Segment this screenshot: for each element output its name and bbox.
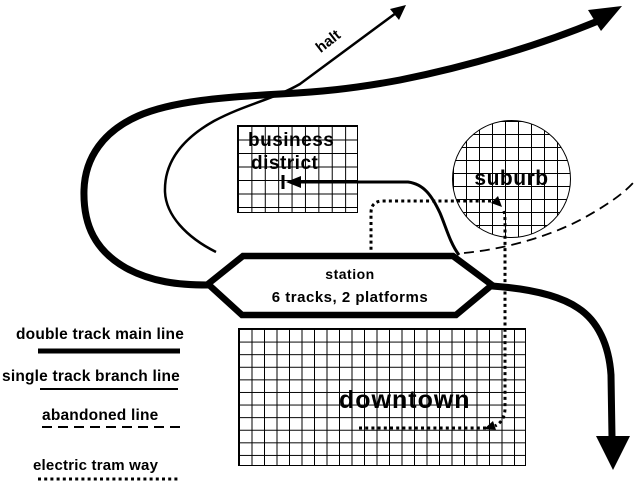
abandoned-line <box>464 183 633 253</box>
tram-arrowhead-suburb-icon <box>491 196 502 207</box>
downtown-label: downtown <box>339 386 471 415</box>
main-line-south-arrowhead-icon <box>596 436 630 470</box>
business-district-arrowhead-icon <box>286 176 301 188</box>
main-line-ne-arrowhead-icon <box>588 6 622 31</box>
main-line-loop <box>84 21 598 285</box>
station-subtitle: 6 tracks, 2 platforms <box>208 289 492 306</box>
branch-line-to-business-district <box>295 182 459 255</box>
legend-label-abandoned-line: abandoned line <box>42 407 158 425</box>
transit-sketch-map: halt business district suburb station 6 … <box>0 0 634 483</box>
main-line-south <box>492 286 612 437</box>
legend-label-double-track-main-line: double track main line <box>16 326 184 344</box>
legend-label-single-track-branch-line: single track branch line <box>2 368 180 386</box>
halt-arrowhead-icon <box>390 5 406 20</box>
station-title: station <box>208 266 492 282</box>
suburb-label: suburb <box>452 167 571 191</box>
legend-label-electric-tram-way: electric tram way <box>33 457 158 474</box>
tram-line-suburb-to-downtown <box>495 211 505 426</box>
tram-line-station-to-suburb <box>371 201 491 256</box>
business-district-label-line2: district <box>248 152 334 175</box>
business-district-label-line1: business <box>248 129 334 152</box>
station-shape <box>208 256 492 315</box>
business-district-label: business district <box>248 129 334 175</box>
